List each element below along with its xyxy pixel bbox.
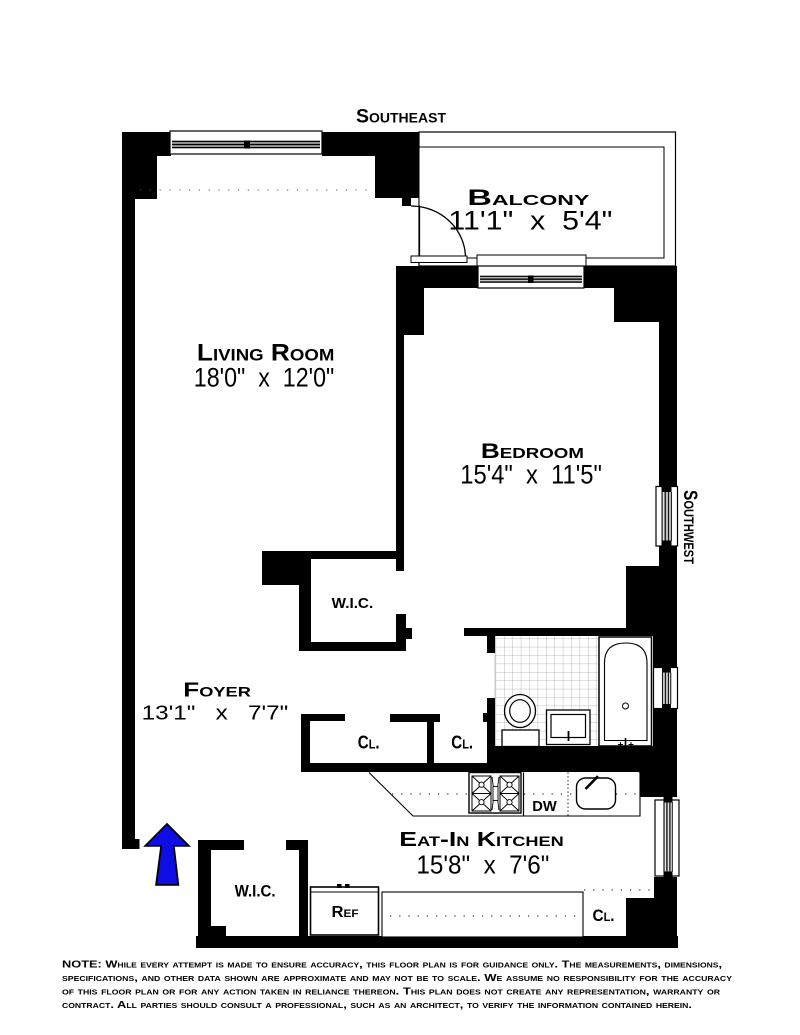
svg-text:Southwest: Southwest [679, 490, 701, 564]
svg-text:W.I.C.: W.I.C. [332, 596, 374, 612]
svg-text:Eat-In Kitchen: Eat-In Kitchen [399, 828, 564, 851]
svg-text:DW: DW [532, 798, 557, 815]
svg-text:NOTE: While every attempt is m: NOTE: While every attempt is made to ens… [62, 959, 722, 971]
svg-text:contract. All parties should c: contract. All parties should consult a p… [62, 999, 692, 1011]
svg-text:W.I.C.: W.I.C. [235, 882, 276, 901]
svg-text:18'0" x 12'0": 18'0" x 12'0" [194, 363, 334, 393]
svg-text:Foyer: Foyer [183, 680, 251, 702]
svg-text:specifications, and other data: specifications, and other data shown are… [62, 972, 732, 984]
svg-text:15'4" x 11'5": 15'4" x 11'5" [460, 460, 602, 490]
svg-text:Cl.: Cl. [451, 733, 473, 753]
svg-text:13'1" x 7'7": 13'1" x 7'7" [142, 703, 289, 725]
svg-text:Cl.: Cl. [593, 906, 615, 925]
svg-text:Ref: Ref [332, 904, 359, 921]
svg-text:15'8" x 7'6": 15'8" x 7'6" [416, 850, 549, 880]
svg-text:Cl.: Cl. [358, 733, 380, 753]
svg-text:Southeast: Southeast [356, 106, 446, 128]
svg-text:of this floor plan or for any: of this floor plan or for any action tak… [62, 986, 720, 998]
svg-text:11'1" x 5'4": 11'1" x 5'4" [448, 206, 612, 236]
